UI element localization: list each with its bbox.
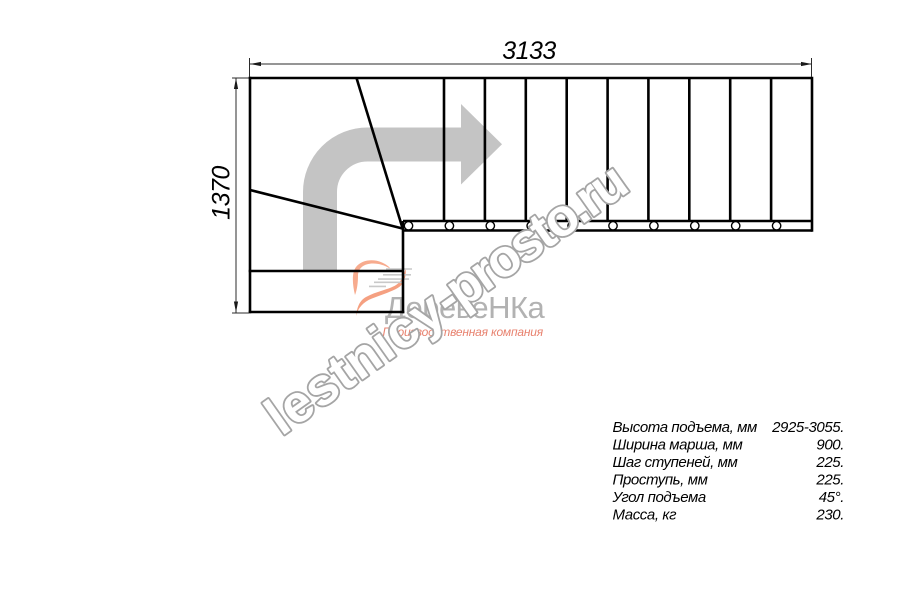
- svg-text:Масса, кг: Масса, кг: [613, 507, 678, 524]
- svg-text:225.: 225.: [815, 454, 844, 471]
- svg-text:Шаг ступеней, мм: Шаг ступеней, мм: [613, 454, 738, 471]
- svg-text:3133: 3133: [502, 37, 556, 65]
- svg-text:Проступь, мм: Проступь, мм: [613, 472, 708, 489]
- svg-text:Ширина марша, мм: Ширина марша, мм: [613, 437, 743, 454]
- svg-text:2925-3055.: 2925-3055.: [771, 419, 844, 436]
- svg-text:900.: 900.: [816, 437, 844, 454]
- svg-text:230.: 230.: [815, 507, 844, 524]
- svg-text:Угол подъема: Угол подъема: [612, 489, 706, 506]
- svg-text:45°.: 45°.: [819, 489, 844, 506]
- svg-text:Высота подъема, мм: Высота подъема, мм: [613, 419, 758, 436]
- svg-text:1370: 1370: [208, 166, 236, 220]
- svg-text:225.: 225.: [815, 472, 844, 489]
